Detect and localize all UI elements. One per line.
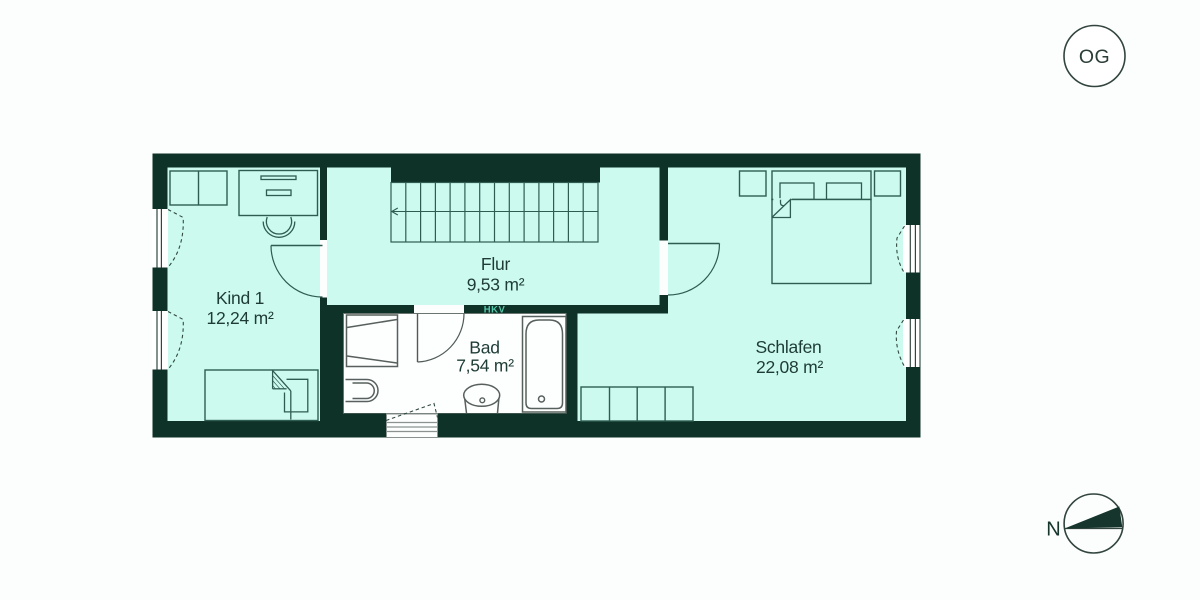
svg-text:12,24 m²: 12,24 m² [206,308,273,328]
svg-text:OG: OG [1079,46,1110,68]
svg-text:N: N [1046,519,1060,541]
svg-text:Schlafen: Schlafen [755,337,821,357]
svg-text:22,08 m²: 22,08 m² [756,357,823,377]
svg-text:9,53 m²: 9,53 m² [467,275,525,295]
svg-text:7,54 m²: 7,54 m² [456,356,514,376]
svg-text:Bad: Bad [469,338,499,358]
svg-text:Flur: Flur [481,254,511,274]
svg-text:Kind 1: Kind 1 [216,288,264,308]
